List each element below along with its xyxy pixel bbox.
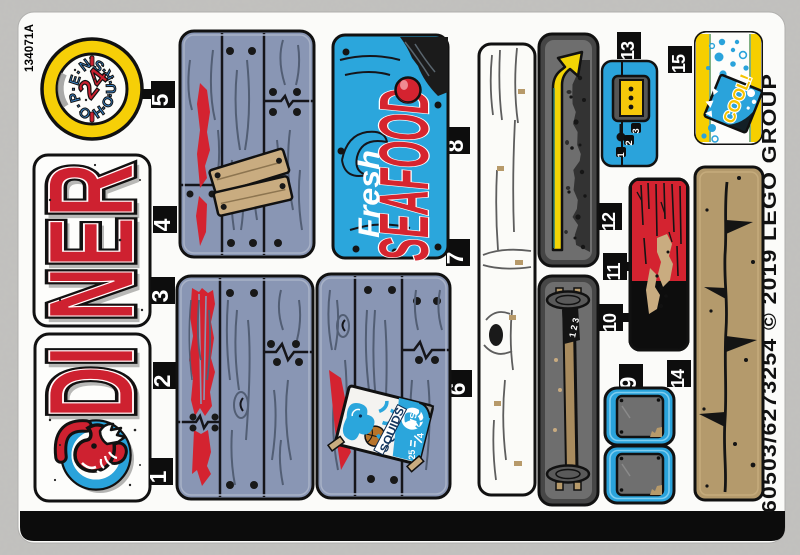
- svg-text:1: 1: [616, 152, 627, 158]
- svg-text:134071A: 134071A: [24, 24, 36, 72]
- svg-text:13: 13: [618, 41, 638, 60]
- svg-text:14: 14: [668, 369, 688, 388]
- svg-text:VS: VS: [408, 412, 419, 425]
- svg-text:3: 3: [631, 128, 642, 133]
- svg-text:5: 5: [147, 93, 173, 106]
- svg-text:11: 11: [604, 262, 624, 280]
- svg-text:12: 12: [599, 212, 619, 231]
- svg-text:15: 15: [669, 54, 689, 73]
- svg-text:Fresh: Fresh: [353, 150, 386, 238]
- svg-text:NER: NER: [23, 163, 159, 321]
- svg-text:2: 2: [624, 140, 635, 145]
- svg-text:DI: DI: [23, 346, 159, 418]
- svg-text:2: 2: [149, 375, 175, 388]
- svg-text:1: 1: [145, 470, 171, 483]
- svg-text:4: 4: [149, 218, 175, 231]
- svg-text:10: 10: [600, 313, 620, 332]
- svg-text:3: 3: [147, 290, 173, 303]
- svg-text:4: 4: [415, 433, 425, 438]
